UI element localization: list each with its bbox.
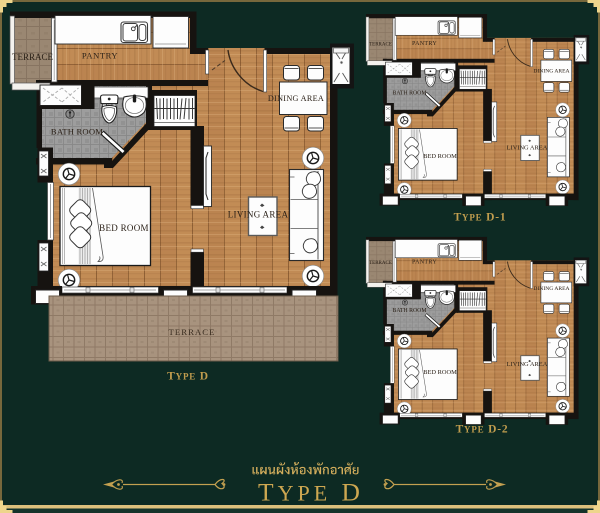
svg-text:LIVING AREA: LIVING AREA bbox=[507, 145, 548, 152]
svg-text:PANTRY: PANTRY bbox=[412, 260, 437, 266]
svg-text:PANTRY: PANTRY bbox=[82, 51, 118, 61]
svg-text:BATH ROOM: BATH ROOM bbox=[393, 308, 427, 314]
svg-text:TYPE D-2: TYPE D-2 bbox=[456, 424, 509, 436]
svg-text:TERRACE: TERRACE bbox=[369, 261, 392, 266]
svg-text:LIVING AREA: LIVING AREA bbox=[228, 210, 289, 220]
svg-text:TERRACE: TERRACE bbox=[369, 43, 392, 48]
svg-text:BATH ROOM: BATH ROOM bbox=[51, 127, 103, 137]
svg-text:TYPE D: TYPE D bbox=[258, 478, 364, 507]
svg-text:DINING AREA: DINING AREA bbox=[533, 286, 569, 292]
svg-text:TERRACE: TERRACE bbox=[12, 52, 54, 62]
svg-text:BED ROOM: BED ROOM bbox=[99, 223, 149, 233]
svg-text:BED ROOM: BED ROOM bbox=[423, 153, 457, 160]
svg-text:BED ROOM: BED ROOM bbox=[423, 369, 457, 376]
svg-text:DINING AREA: DINING AREA bbox=[533, 69, 569, 75]
svg-text:LIVING AREA: LIVING AREA bbox=[507, 361, 548, 368]
svg-text:TYPE D: TYPE D bbox=[167, 371, 209, 383]
svg-text:PANTRY: PANTRY bbox=[412, 41, 437, 47]
svg-text:TYPE D-1: TYPE D-1 bbox=[454, 212, 507, 224]
svg-text:TERRACE: TERRACE bbox=[168, 327, 215, 337]
svg-text:DINING AREA: DINING AREA bbox=[268, 94, 324, 103]
svg-text:BATH ROOM: BATH ROOM bbox=[393, 91, 427, 97]
